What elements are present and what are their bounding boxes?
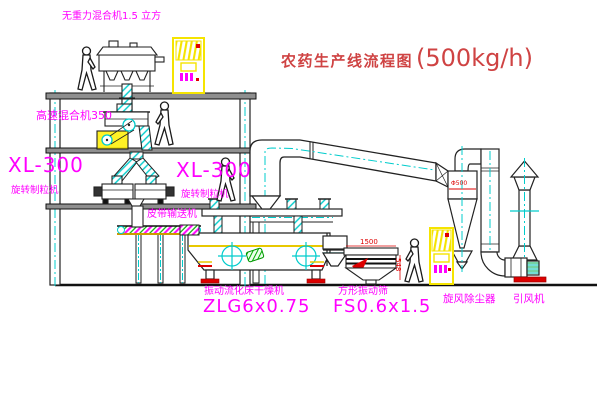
dim-screen-length: 1500: [360, 238, 378, 246]
vibrating-screen: [344, 246, 400, 284]
label-cyclone: 旋风除尘器: [443, 294, 496, 305]
label-granulator-right-model: XL-300: [176, 160, 252, 181]
label-screen-model: FS0.6x1.5: [333, 298, 431, 317]
label-fan: 引风机: [513, 294, 545, 305]
label-granulator-left-model: XL-300: [8, 155, 84, 176]
label-high-speed-mixer: 高速混合机350: [36, 110, 112, 122]
fluid-bed-dryer: [180, 196, 347, 283]
dim-screen-height: 548: [394, 258, 402, 271]
diagram-title: 农药生产线流程图 (500kg/h): [281, 44, 533, 72]
label-gravity-mixer: 无重力混合机1.5 立方: [62, 12, 161, 23]
fan-motor: [527, 261, 539, 275]
worker-floor2: [155, 102, 173, 145]
title-capacity: (500kg/h): [416, 44, 533, 72]
induced-draft-fan: [505, 258, 546, 282]
title-text: 农药生产线流程图: [281, 50, 413, 71]
fan-suction-duct: [481, 149, 505, 276]
label-granulator-left-name: 旋转制粒机: [11, 186, 59, 196]
worker-roof: [78, 47, 96, 90]
dim-cyclone-diameter: Φ500: [451, 180, 467, 187]
worker-ground: [405, 239, 423, 282]
cad-process-flow-sheet: 农药生产线流程图 (500kg/h) 无重力混合机1.5 立方 高速混合机350…: [0, 0, 600, 403]
label-dryer-model: ZLG6x0.75: [203, 298, 311, 317]
high-speed-mixer: [97, 99, 152, 150]
control-cabinet-upper: [173, 38, 204, 93]
label-granulator-right-name: 旋转制粒机: [181, 190, 229, 200]
control-cabinet-lower: [430, 228, 453, 284]
label-belt-conveyor: 皮带输送机: [147, 210, 197, 221]
